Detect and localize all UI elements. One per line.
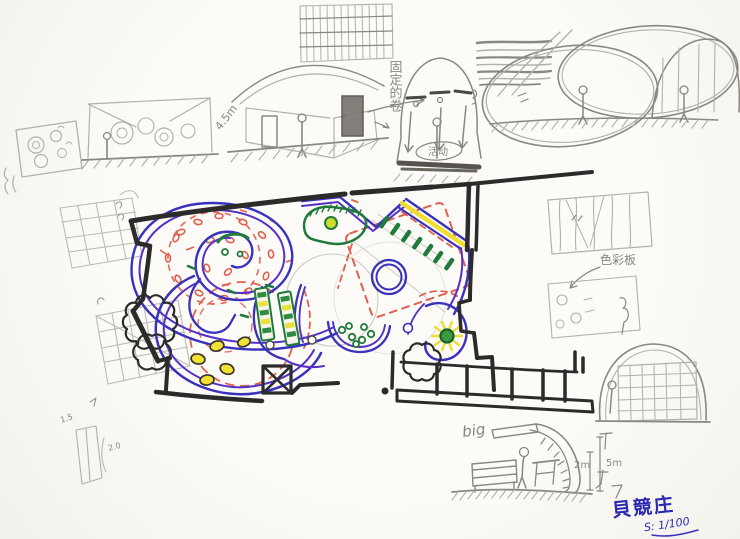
- bean-dot: [325, 217, 337, 229]
- ring-dot: [266, 341, 274, 349]
- section-dim-small: 2m: [574, 460, 590, 471]
- pencil-sketch-gallery-elevation: [82, 98, 218, 169]
- stepping-bars: [378, 215, 455, 271]
- door-height-label: 3m: [345, 110, 361, 122]
- plan-blue-walls: [132, 197, 470, 394]
- signature-block: 貝競庄 S: 1/100: [596, 470, 698, 536]
- pencil-sketch-vertical-screen: [300, 4, 393, 62]
- vertical-note: 固定的卷: [375, 60, 402, 128]
- pencil-sketch-dim-study: 1.5 2.0: [59, 398, 122, 484]
- pencil-sketch-dome-cluster: [472, 20, 740, 157]
- sketch-canvas: 3m 4.5m 固定的卷 活动: [0, 0, 740, 539]
- big-note-text: big: [461, 420, 486, 441]
- activity-note-text: 活动: [428, 146, 448, 158]
- plan-pencil-guides: [286, 214, 448, 354]
- study-dim-a: 1.5: [59, 412, 74, 424]
- ring-dot: [404, 324, 413, 333]
- pencil-sketch-net-dome: [596, 344, 710, 449]
- pencil-sketch-texture-panel: 色彩板: [548, 192, 652, 338]
- bench-strip: [254, 287, 274, 340]
- pencil-sketch-dome-section: 活动: [394, 58, 481, 184]
- wall-dot: [382, 388, 389, 395]
- sketch-scan: 3m 4.5m 固定的卷 活动: [0, 0, 740, 539]
- study-dim-b: 2.0: [107, 441, 122, 453]
- vertical-note-text: 固定的卷: [387, 60, 403, 112]
- pencil-sketch-panel-circles: [4, 121, 82, 194]
- floor-plan: [123, 172, 593, 412]
- material-note-text: 色彩板: [600, 253, 636, 267]
- pencil-sketch-big-section: big 2m 5m: [452, 420, 622, 502]
- ring-dot: [308, 336, 316, 344]
- spiral-wall: [132, 203, 337, 350]
- section-dim-large: 5m: [606, 458, 622, 469]
- plan-red-guides: [160, 200, 471, 386]
- arch-height-label: 4.5m: [212, 102, 240, 132]
- sunburst: [432, 322, 462, 350]
